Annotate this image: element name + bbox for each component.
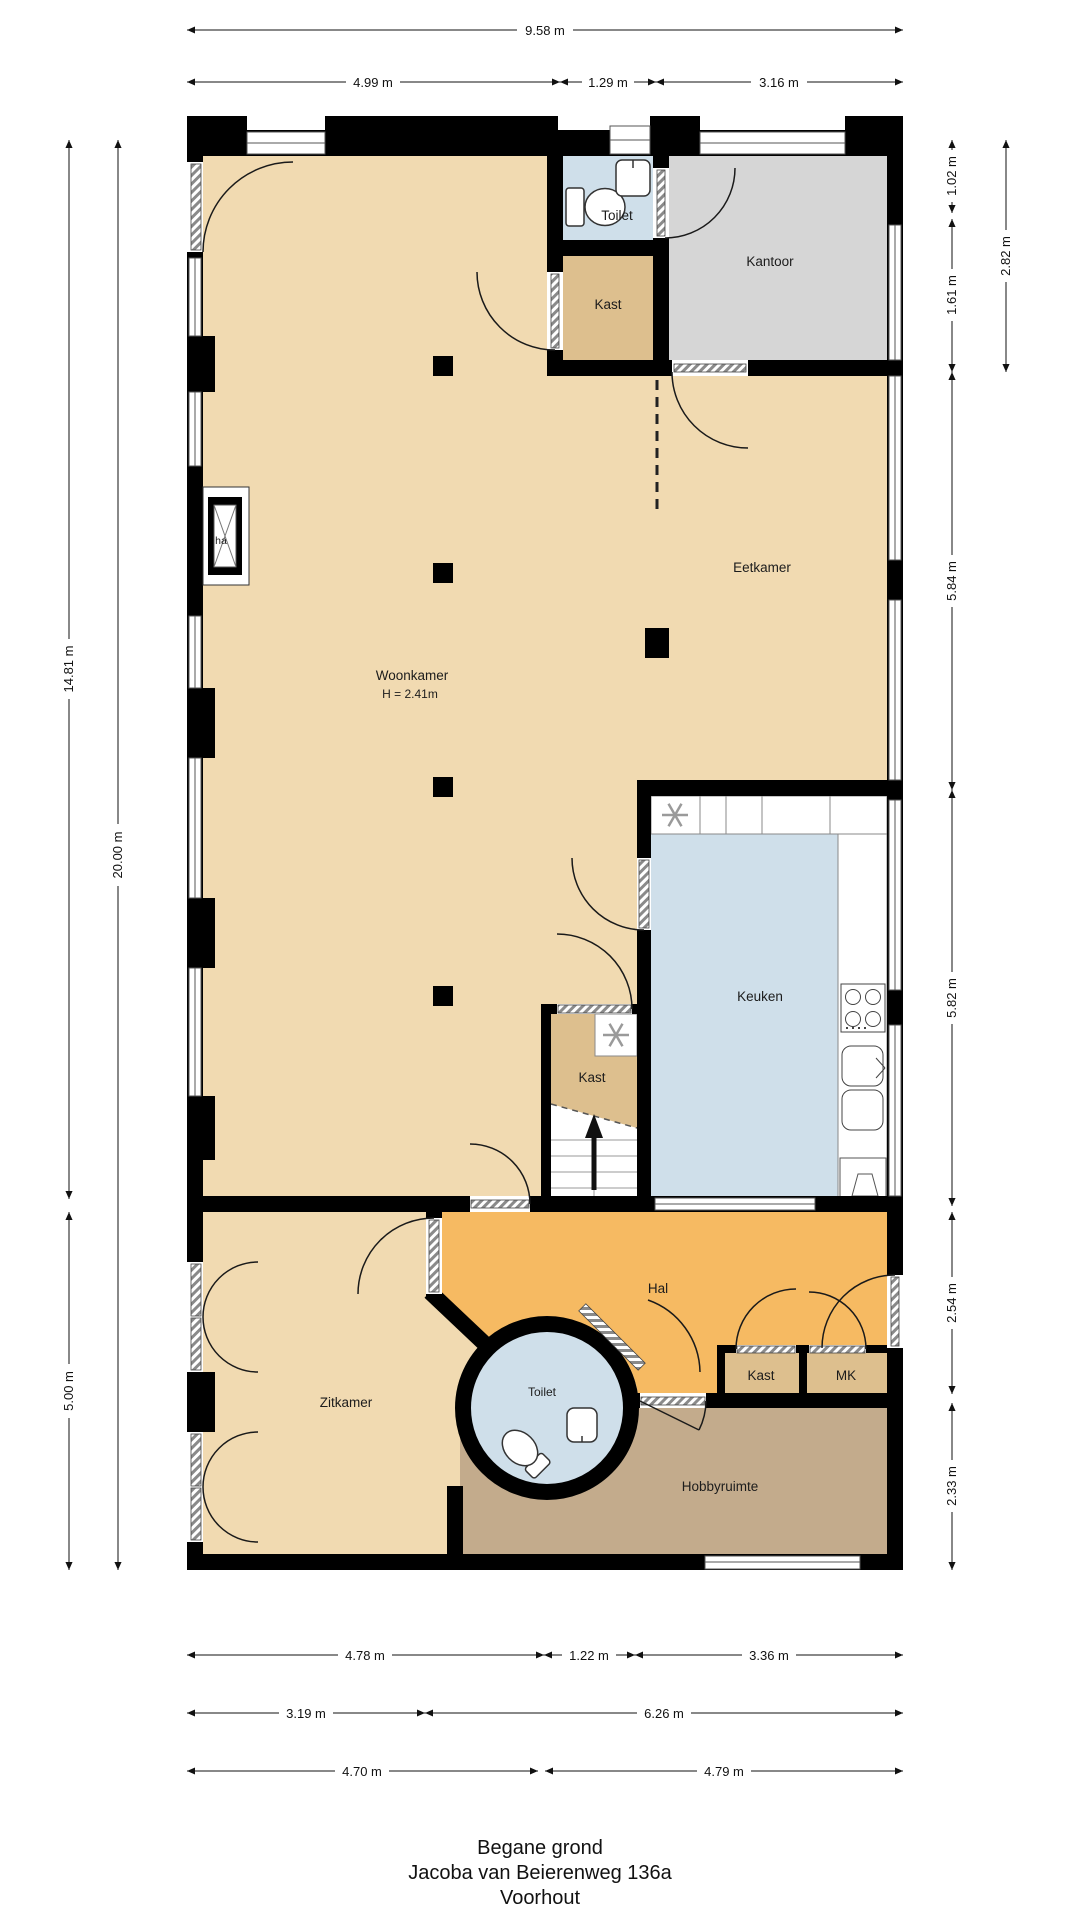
pillar [433, 356, 453, 376]
title-city: Voorhout [0, 1886, 1080, 1911]
meterkast-label: MK [836, 1368, 856, 1383]
dim-top-seg1: 4.99 m [353, 75, 393, 90]
door-zitkamer [429, 1220, 439, 1292]
woonkamer-label: Woonkamer [376, 668, 449, 683]
title-street: Jacoba van Beierenweg 136a [0, 1861, 1080, 1886]
dim-right-seg1: 1.02 m [944, 156, 959, 196]
window-right-5 [889, 1025, 901, 1196]
dim-right-seg2: 1.61 m [944, 275, 959, 315]
dim-bottom-r3s1: 4.70 m [342, 1764, 382, 1779]
door-meterkast [810, 1346, 865, 1353]
hobbyruimte-label: Hobbyruimte [682, 1479, 759, 1494]
pillar [433, 777, 453, 797]
window-right-4 [889, 800, 901, 990]
kantoor-label: Kantoor [746, 254, 794, 269]
floorplan-page: Woonkamer H = 2.41m Eetkamer Kantoor Toi… [0, 0, 1080, 1920]
front-door [891, 1277, 899, 1346]
window-left-3 [189, 616, 201, 688]
dim-bottom-r2s2: 6.26 m [644, 1706, 684, 1721]
toilet-tank-icon [566, 188, 584, 226]
dim-top-total: 9.58 m [525, 23, 565, 38]
window-right-3 [889, 600, 901, 780]
window-left-4 [189, 758, 201, 898]
window-top-toilet [610, 126, 650, 154]
dim-bottom-r3s2: 4.79 m [704, 1764, 744, 1779]
french-door-1a [191, 1264, 201, 1316]
door-kast-top [551, 274, 559, 348]
kast-stairs-label: Kast [578, 1070, 605, 1085]
stove-icon [841, 984, 885, 1032]
hal-label: Hal [648, 1281, 668, 1296]
dim-right-seg4: 5.82 m [944, 978, 959, 1018]
dim-right-seg5: 2.54 m [944, 1283, 959, 1323]
door-kantoor [674, 364, 746, 372]
window-left-5 [189, 968, 201, 1096]
eetkamer-label: Eetkamer [733, 560, 791, 575]
door-woonkamer-south [471, 1200, 529, 1208]
glass-wall-hal-keuken [655, 1198, 815, 1210]
zitkamer-label: Zitkamer [320, 1395, 373, 1410]
door-kast-stairs [558, 1005, 631, 1013]
window-left-2 [189, 392, 201, 466]
title-block: Begane grond Jacoba van Beierenweg 136a … [0, 1836, 1080, 1911]
window-top-1 [247, 132, 325, 154]
dim-bottom-r1s2: 1.22 m [569, 1648, 609, 1663]
door-kast-hal [737, 1346, 795, 1353]
dim-bottom-r1s1: 4.78 m [345, 1648, 385, 1663]
window-right-1 [889, 225, 901, 360]
window-right-2 [889, 376, 901, 560]
dim-left-seg1: 14.81 m [61, 646, 76, 693]
dim-top-seg3: 3.16 m [759, 75, 799, 90]
window-top-kantoor [700, 132, 845, 154]
dim-bottom-r1s3: 3.36 m [749, 1648, 789, 1663]
dishwasher-icon [840, 1158, 886, 1202]
fireplace-label: ha [215, 535, 227, 547]
dim-right-outer: 2.82 m [998, 236, 1013, 276]
dim-left-seg2: 5.00 m [61, 1371, 76, 1411]
french-door-2b [191, 1488, 201, 1540]
dim-bottom-r2s1: 3.19 m [286, 1706, 326, 1721]
pillar [433, 563, 453, 583]
title-floor: Begane grond [0, 1836, 1080, 1861]
woonkamer-height-label: H = 2.41m [382, 687, 438, 701]
toilet-top-label: Toilet [601, 208, 633, 223]
french-door-1b [191, 1318, 201, 1370]
window-left-1 [189, 258, 201, 336]
pillar [433, 986, 453, 1006]
dim-right-seg3: 5.84 m [944, 561, 959, 601]
door-woonkamer-left [191, 164, 201, 250]
french-door-2a [191, 1434, 201, 1486]
door-hobbyruimte [641, 1397, 705, 1405]
door-toilet-top [657, 170, 665, 236]
kast-top-label: Kast [594, 297, 621, 312]
dim-top-seg2: 1.29 m [588, 75, 628, 90]
dim-right-seg6: 2.33 m [944, 1466, 959, 1506]
window-bottom-hobby [705, 1556, 860, 1569]
floorplan-drawing: Woonkamer H = 2.41m Eetkamer Kantoor Toi… [0, 0, 1080, 1920]
door-keuken [639, 860, 649, 928]
dim-left-total: 20.00 m [110, 832, 125, 879]
kast-hal-label: Kast [747, 1368, 774, 1383]
toilet-round-label: Toilet [528, 1385, 557, 1399]
keuken-label: Keuken [737, 989, 783, 1004]
